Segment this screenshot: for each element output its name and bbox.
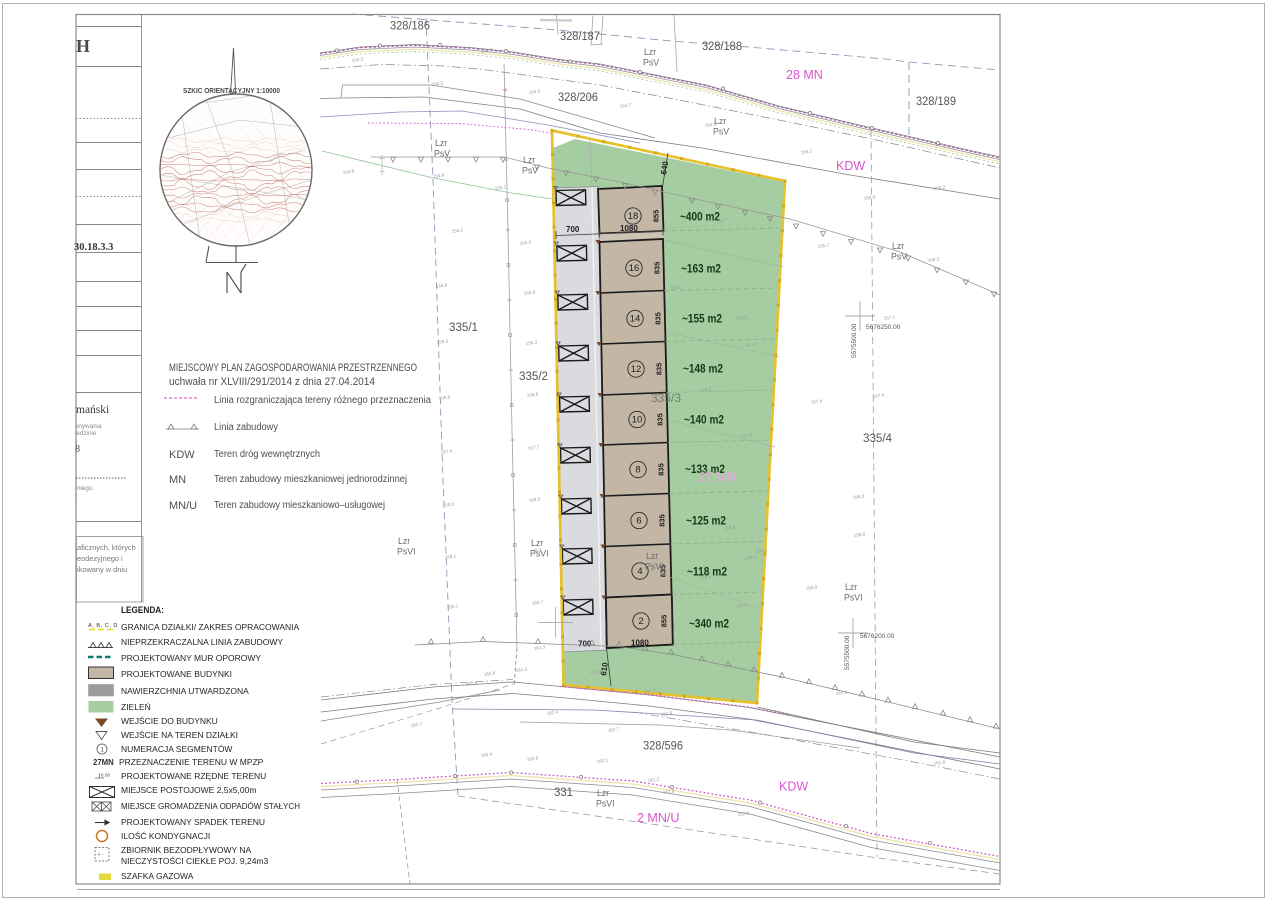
svg-text:5676200.00: 5676200.00 bbox=[860, 633, 895, 640]
svg-text:Teren zabudowy mieszkaniowo–us: Teren zabudowy mieszkaniowo–usługowej bbox=[214, 500, 385, 511]
svg-text:335/4: 335/4 bbox=[863, 433, 893, 445]
svg-text:NIEPRZEKRACZALNA LINIA ZABUDOW: NIEPRZEKRACZALNA LINIA ZABUDOWY bbox=[121, 637, 283, 647]
svg-text:5676250.00: 5676250.00 bbox=[866, 324, 901, 331]
svg-text:328/189: 328/189 bbox=[916, 96, 956, 108]
svg-text:Teren dróg wewnętrznych: Teren dróg wewnętrznych bbox=[214, 449, 320, 460]
svg-text:KDW: KDW bbox=[169, 449, 195, 461]
svg-text:1080: 1080 bbox=[620, 224, 638, 233]
svg-text:PsV: PsV bbox=[713, 127, 729, 137]
svg-text:ZIELEŃ: ZIELEŃ bbox=[121, 702, 151, 712]
svg-text:NUMERACJA SEGMENTÓW: NUMERACJA SEGMENTÓW bbox=[121, 744, 232, 754]
svg-text:30.18.3.3: 30.18.3.3 bbox=[74, 242, 113, 253]
svg-text:MIEJSCE GROMADZENIA ODPADÓW ST: MIEJSCE GROMADZENIA ODPADÓW STAŁYCH bbox=[121, 801, 300, 811]
svg-text:PsV: PsV bbox=[434, 149, 450, 159]
svg-text:Lzr: Lzr bbox=[398, 536, 410, 546]
svg-text:Lzr: Lzr bbox=[523, 155, 535, 165]
svg-text:eodezyjnego i: eodezyjnego i bbox=[77, 554, 123, 563]
svg-text:~155 m2: ~155 m2 bbox=[682, 314, 722, 326]
svg-text:SZAFKA GAZOWA: SZAFKA GAZOWA bbox=[121, 871, 194, 881]
svg-text:27MN: 27MN bbox=[93, 758, 114, 767]
svg-text:855: 855 bbox=[652, 210, 661, 223]
svg-text:MIEJSCOWY PLAN ZAGOSPODAROWANI: MIEJSCOWY PLAN ZAGOSPODAROWANIA PRZESTRZ… bbox=[169, 362, 417, 374]
svg-text:5575500.00: 5575500.00 bbox=[851, 323, 858, 358]
svg-text:Lzr: Lzr bbox=[845, 582, 857, 592]
svg-text:~163 m2: ~163 m2 bbox=[681, 264, 721, 276]
svg-text:PROJEKTOWANE BUDYNKI: PROJEKTOWANE BUDYNKI bbox=[121, 669, 232, 679]
svg-text:iedzinie: iedzinie bbox=[75, 430, 97, 437]
svg-text:10: 10 bbox=[632, 415, 643, 426]
svg-text:~340 m2: ~340 m2 bbox=[689, 619, 729, 631]
svg-text:Linia zabudowy: Linia zabudowy bbox=[214, 422, 278, 433]
svg-text:855: 855 bbox=[660, 615, 669, 628]
svg-text:GRANICA DZIAŁKI/ ZAKRES OPRACO: GRANICA DZIAŁKI/ ZAKRES OPRACOWANIA bbox=[121, 622, 300, 632]
svg-text:18: 18 bbox=[628, 211, 639, 222]
svg-text:niego.: niego. bbox=[77, 485, 94, 492]
svg-text:8.88: 8.88 bbox=[101, 773, 110, 778]
svg-text:335/3: 335/3 bbox=[651, 393, 681, 405]
svg-text:PsV: PsV bbox=[522, 166, 538, 176]
svg-text:328/186: 328/186 bbox=[390, 21, 430, 33]
svg-text:ILOŚĆ KONDYGNACJI: ILOŚĆ KONDYGNACJI bbox=[121, 830, 210, 841]
svg-text:PsV: PsV bbox=[643, 58, 659, 68]
svg-text:Lzr: Lzr bbox=[435, 138, 447, 148]
svg-text:Lzr: Lzr bbox=[644, 47, 656, 57]
svg-text:PsVI: PsVI bbox=[645, 562, 664, 572]
svg-text:MIEJSCE POSTOJOWE 2,5x5,00m: MIEJSCE POSTOJOWE 2,5x5,00m bbox=[121, 785, 256, 795]
svg-text:PRZEZNACZENIE TERENU W MPZP: PRZEZNACZENIE TERENU W MPZP bbox=[119, 757, 264, 767]
svg-text:NAWIERZCHNIA UTWARDZONA: NAWIERZCHNIA UTWARDZONA bbox=[121, 686, 249, 696]
svg-text:835: 835 bbox=[656, 413, 665, 426]
svg-text:8: 8 bbox=[75, 444, 80, 455]
svg-text:NIECZYSTOŚCI CIEKŁE POJ. 9,24m: NIECZYSTOŚCI CIEKŁE POJ. 9,24m3 bbox=[121, 855, 268, 866]
svg-text:~400 m2: ~400 m2 bbox=[680, 212, 720, 224]
svg-text:12: 12 bbox=[631, 364, 642, 375]
svg-text:PsVI: PsVI bbox=[596, 799, 615, 809]
svg-text:28 MN: 28 MN bbox=[786, 68, 823, 82]
svg-text:Lzr: Lzr bbox=[531, 538, 543, 548]
svg-text:PROJEKTOWANY MUR OPOROWY: PROJEKTOWANY MUR OPOROWY bbox=[121, 653, 261, 663]
svg-text:PsVI: PsVI bbox=[844, 593, 863, 603]
svg-text:ikowany w dniu: ikowany w dniu bbox=[77, 565, 127, 574]
svg-text:WEJŚCIE NA TEREN DZIAŁKI: WEJŚCIE NA TEREN DZIAŁKI bbox=[121, 729, 238, 740]
svg-text:Lzr: Lzr bbox=[597, 788, 609, 798]
svg-text:335/2: 335/2 bbox=[519, 371, 548, 383]
svg-text:Linia rozgraniczająca tereny r: Linia rozgraniczająca tereny różnego prz… bbox=[214, 395, 431, 406]
svg-text:~148 m2: ~148 m2 bbox=[683, 364, 723, 376]
svg-text:1080: 1080 bbox=[631, 639, 649, 648]
svg-text:Teren zabudowy mieszkaniowej j: Teren zabudowy mieszkaniowej jednorodzin… bbox=[214, 474, 407, 485]
svg-text:328/596: 328/596 bbox=[643, 741, 683, 753]
svg-text:~125 m2: ~125 m2 bbox=[686, 516, 726, 528]
svg-text:835: 835 bbox=[653, 262, 662, 275]
svg-text:WEJŚCIE DO BUDYNKU: WEJŚCIE DO BUDYNKU bbox=[121, 715, 218, 726]
svg-text:MN/U: MN/U bbox=[169, 500, 197, 512]
svg-text:2: 2 bbox=[638, 616, 643, 627]
svg-text:PROJEKTOWANE RZĘDNE TERENU: PROJEKTOWANE RZĘDNE TERENU bbox=[121, 771, 266, 781]
svg-text:328/187: 328/187 bbox=[560, 31, 600, 43]
svg-text:700: 700 bbox=[566, 225, 580, 234]
svg-text:aficznych, których: aficznych, których bbox=[77, 543, 136, 552]
svg-text:6: 6 bbox=[636, 516, 641, 527]
svg-text:835: 835 bbox=[657, 463, 666, 476]
svg-text:KDW: KDW bbox=[779, 780, 808, 794]
svg-text:16: 16 bbox=[629, 263, 640, 274]
svg-text:14: 14 bbox=[630, 314, 641, 325]
svg-text:~140 m2: ~140 m2 bbox=[684, 415, 724, 427]
svg-text:H: H bbox=[76, 36, 90, 56]
svg-text:PsV: PsV bbox=[891, 252, 907, 262]
svg-text:A, B, C, D: A, B, C, D bbox=[88, 623, 118, 629]
svg-text:335/1: 335/1 bbox=[449, 322, 478, 334]
svg-text:PsVI: PsVI bbox=[397, 547, 416, 557]
svg-text:onywania: onywania bbox=[75, 423, 102, 430]
svg-text:835: 835 bbox=[655, 363, 664, 376]
svg-text:5575500.00: 5575500.00 bbox=[844, 635, 851, 670]
svg-text:+ ·: + · bbox=[98, 852, 104, 858]
svg-text:2 MN/U: 2 MN/U bbox=[637, 811, 679, 825]
svg-text:Lzr: Lzr bbox=[892, 241, 904, 251]
svg-text:KDW: KDW bbox=[836, 159, 865, 173]
svg-text:mański: mański bbox=[76, 404, 109, 416]
svg-text:ZBIORNIK BEZODPŁYWOWY NA: ZBIORNIK BEZODPŁYWOWY NA bbox=[121, 845, 252, 855]
svg-text:Lzr: Lzr bbox=[646, 551, 658, 561]
svg-text:331: 331 bbox=[554, 787, 573, 799]
svg-text:4: 4 bbox=[637, 566, 642, 577]
svg-text:835: 835 bbox=[658, 514, 667, 527]
svg-text:uchwała nr XLVIII/291/2014 z d: uchwała nr XLVIII/291/2014 z dnia 27.04.… bbox=[169, 376, 375, 388]
svg-text:): ) bbox=[75, 495, 77, 502]
svg-text:835: 835 bbox=[654, 312, 663, 325]
svg-text:328/188: 328/188 bbox=[702, 41, 742, 53]
svg-text:LEGENDA:: LEGENDA: bbox=[121, 605, 164, 616]
svg-text:PROJEKTOWANY SPADEK TERENU: PROJEKTOWANY SPADEK TERENU bbox=[121, 817, 265, 827]
svg-text:8: 8 bbox=[635, 465, 640, 476]
svg-text:MN: MN bbox=[169, 474, 186, 486]
